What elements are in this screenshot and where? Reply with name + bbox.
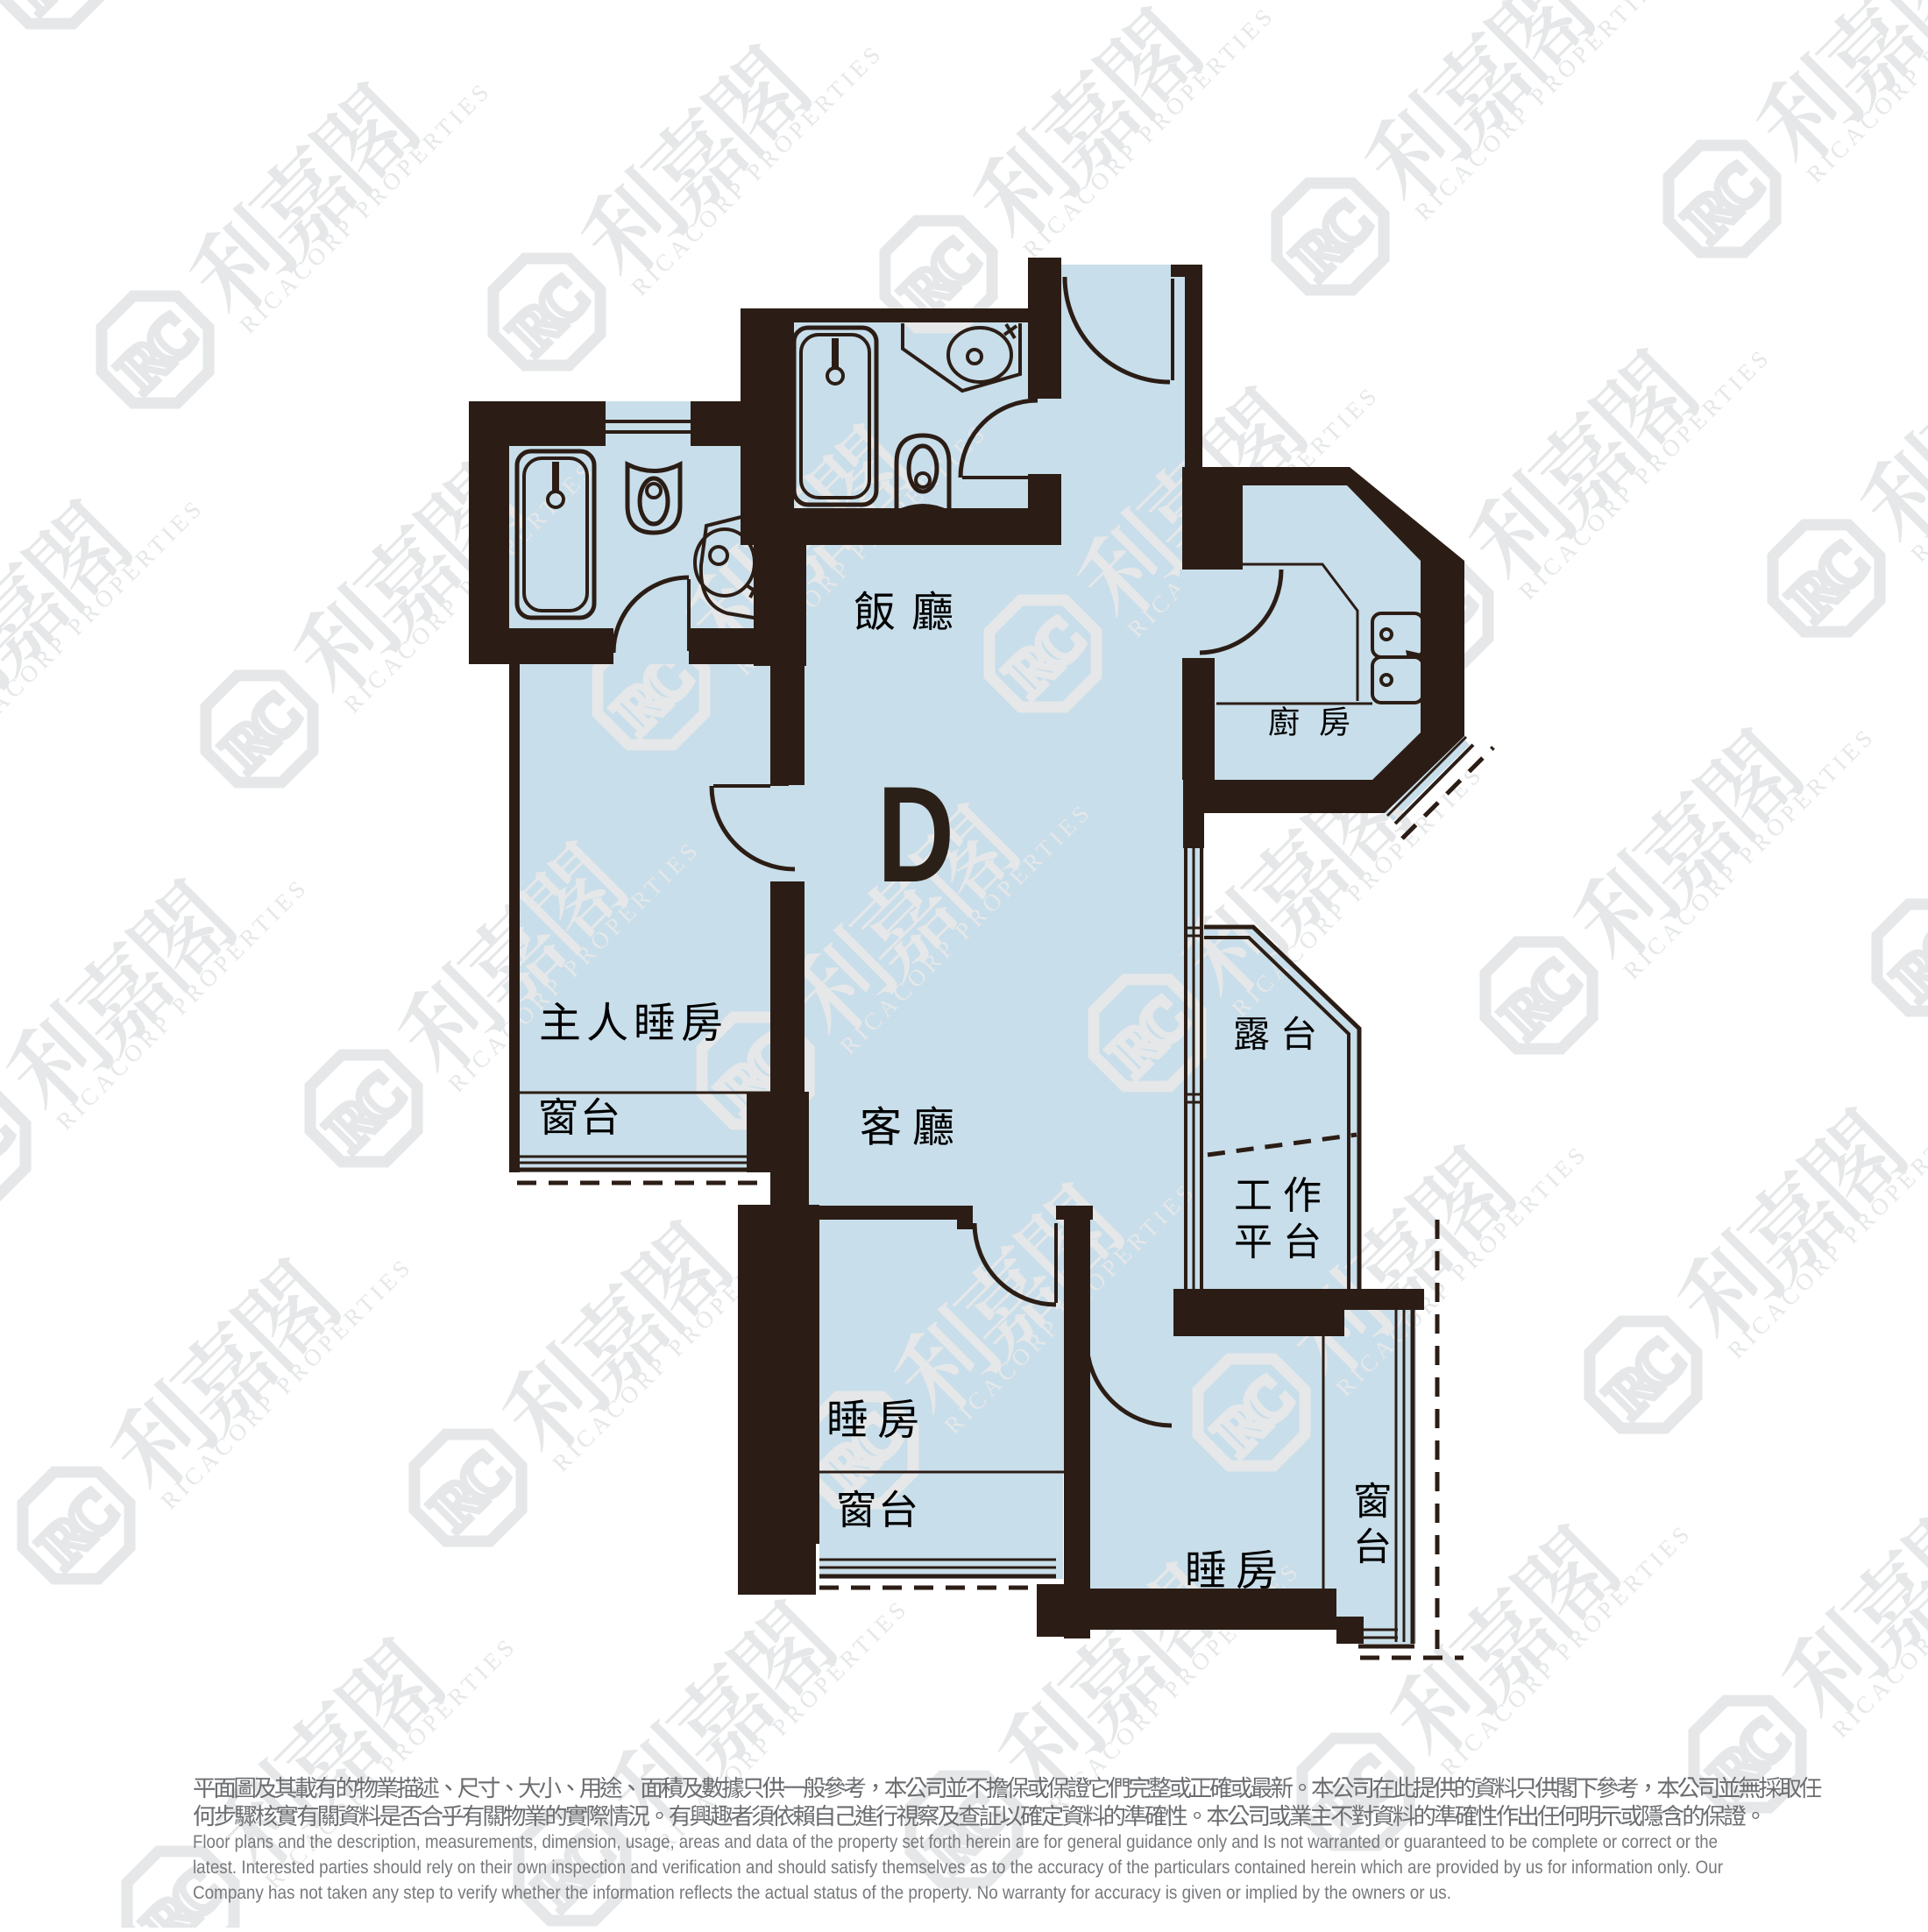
svg-text:latest. Interested parties sho: latest. Interested parties should rely o… [193, 1858, 1723, 1878]
svg-text:D: D [877, 757, 954, 910]
svg-text:Floor plans and the descriptio: Floor plans and the description, measure… [193, 1832, 1718, 1852]
svg-text:Company has not taken any step: Company has not taken any step to verify… [193, 1883, 1451, 1903]
